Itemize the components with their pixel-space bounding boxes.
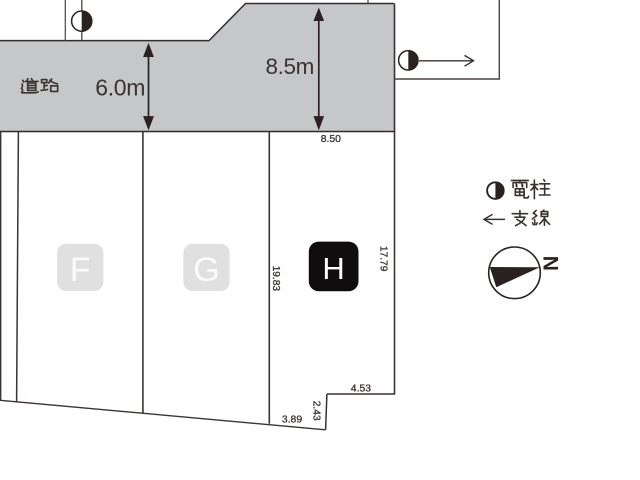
svg-text:N: N — [538, 256, 561, 271]
svg-text:H: H — [322, 251, 344, 286]
svg-text:19.83: 19.83 — [270, 266, 281, 292]
svg-text:17.79: 17.79 — [377, 246, 388, 272]
svg-text:4.53: 4.53 — [351, 384, 371, 395]
svg-text:8.50: 8.50 — [321, 134, 341, 145]
svg-text:6.0m: 6.0m — [95, 75, 145, 101]
svg-text:G: G — [193, 251, 219, 289]
svg-text:8.5m: 8.5m — [266, 54, 314, 79]
svg-text:F: F — [70, 251, 91, 289]
svg-text:2.43: 2.43 — [311, 401, 322, 421]
svg-text:3.89: 3.89 — [282, 415, 302, 426]
